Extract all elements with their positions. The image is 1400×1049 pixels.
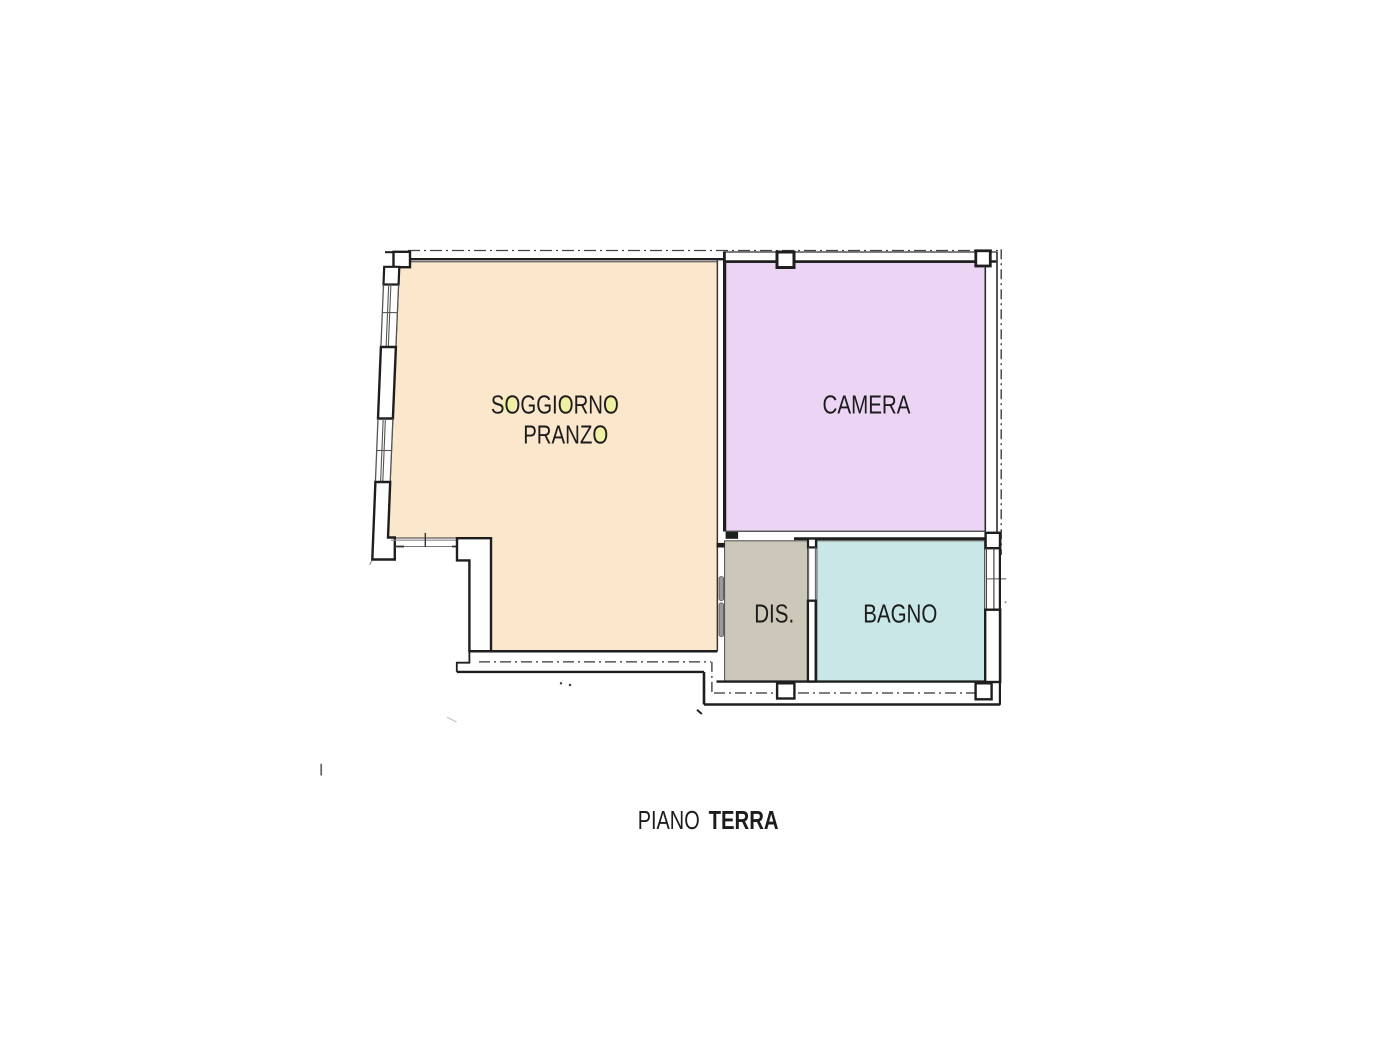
svg-text:SOGGIORNO: SOGGIORNO	[491, 389, 619, 419]
svg-text:CAMERA: CAMERA	[823, 389, 912, 419]
svg-text:TERRA: TERRA	[709, 807, 779, 835]
svg-text:PIANO: PIANO	[638, 807, 700, 835]
svg-text:PRANZO: PRANZO	[523, 420, 608, 450]
svg-text:DIS.: DIS.	[754, 598, 794, 628]
svg-text:BAGNO: BAGNO	[863, 598, 937, 628]
